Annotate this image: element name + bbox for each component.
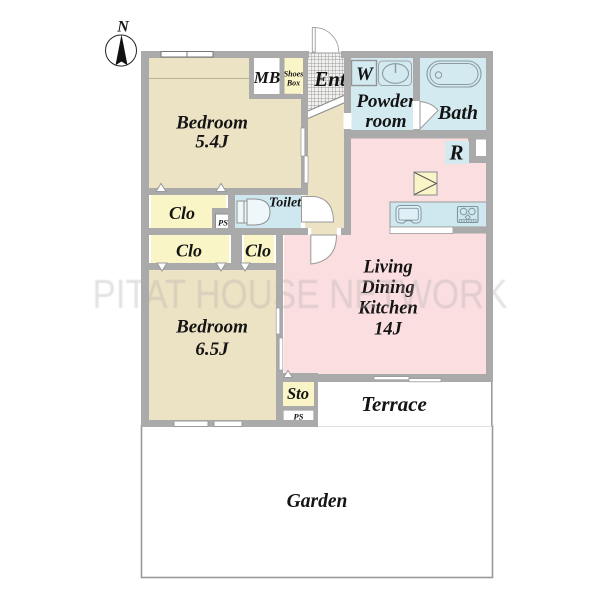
svg-text:Terrace: Terrace xyxy=(361,392,427,416)
svg-text:PITAT HOUSE NETWORK: PITAT HOUSE NETWORK xyxy=(93,271,508,317)
svg-text:R: R xyxy=(448,141,463,165)
svg-text:Garden: Garden xyxy=(287,491,348,512)
svg-text:5.4J: 5.4J xyxy=(195,132,229,153)
svg-text:Shoes: Shoes xyxy=(284,70,304,79)
svg-text:Bath: Bath xyxy=(437,102,478,124)
svg-text:Ent: Ent xyxy=(313,67,347,91)
svg-text:PS: PS xyxy=(218,218,228,228)
svg-text:Powder: Powder xyxy=(355,91,416,112)
svg-text:14J: 14J xyxy=(374,320,403,340)
svg-text:Sto: Sto xyxy=(287,384,309,403)
svg-text:room: room xyxy=(365,111,406,132)
svg-text:Bedroom: Bedroom xyxy=(175,113,248,134)
svg-text:Clo: Clo xyxy=(176,241,202,261)
svg-text:N: N xyxy=(116,19,130,36)
svg-text:W: W xyxy=(356,64,374,85)
svg-text:Clo: Clo xyxy=(245,241,271,261)
svg-text:Clo: Clo xyxy=(169,203,195,223)
svg-text:Bedroom: Bedroom xyxy=(175,317,248,338)
svg-text:Toilet: Toilet xyxy=(269,196,302,211)
svg-text:MB: MB xyxy=(253,68,280,87)
svg-text:6.5J: 6.5J xyxy=(195,339,229,360)
svg-text:Box: Box xyxy=(286,79,300,88)
